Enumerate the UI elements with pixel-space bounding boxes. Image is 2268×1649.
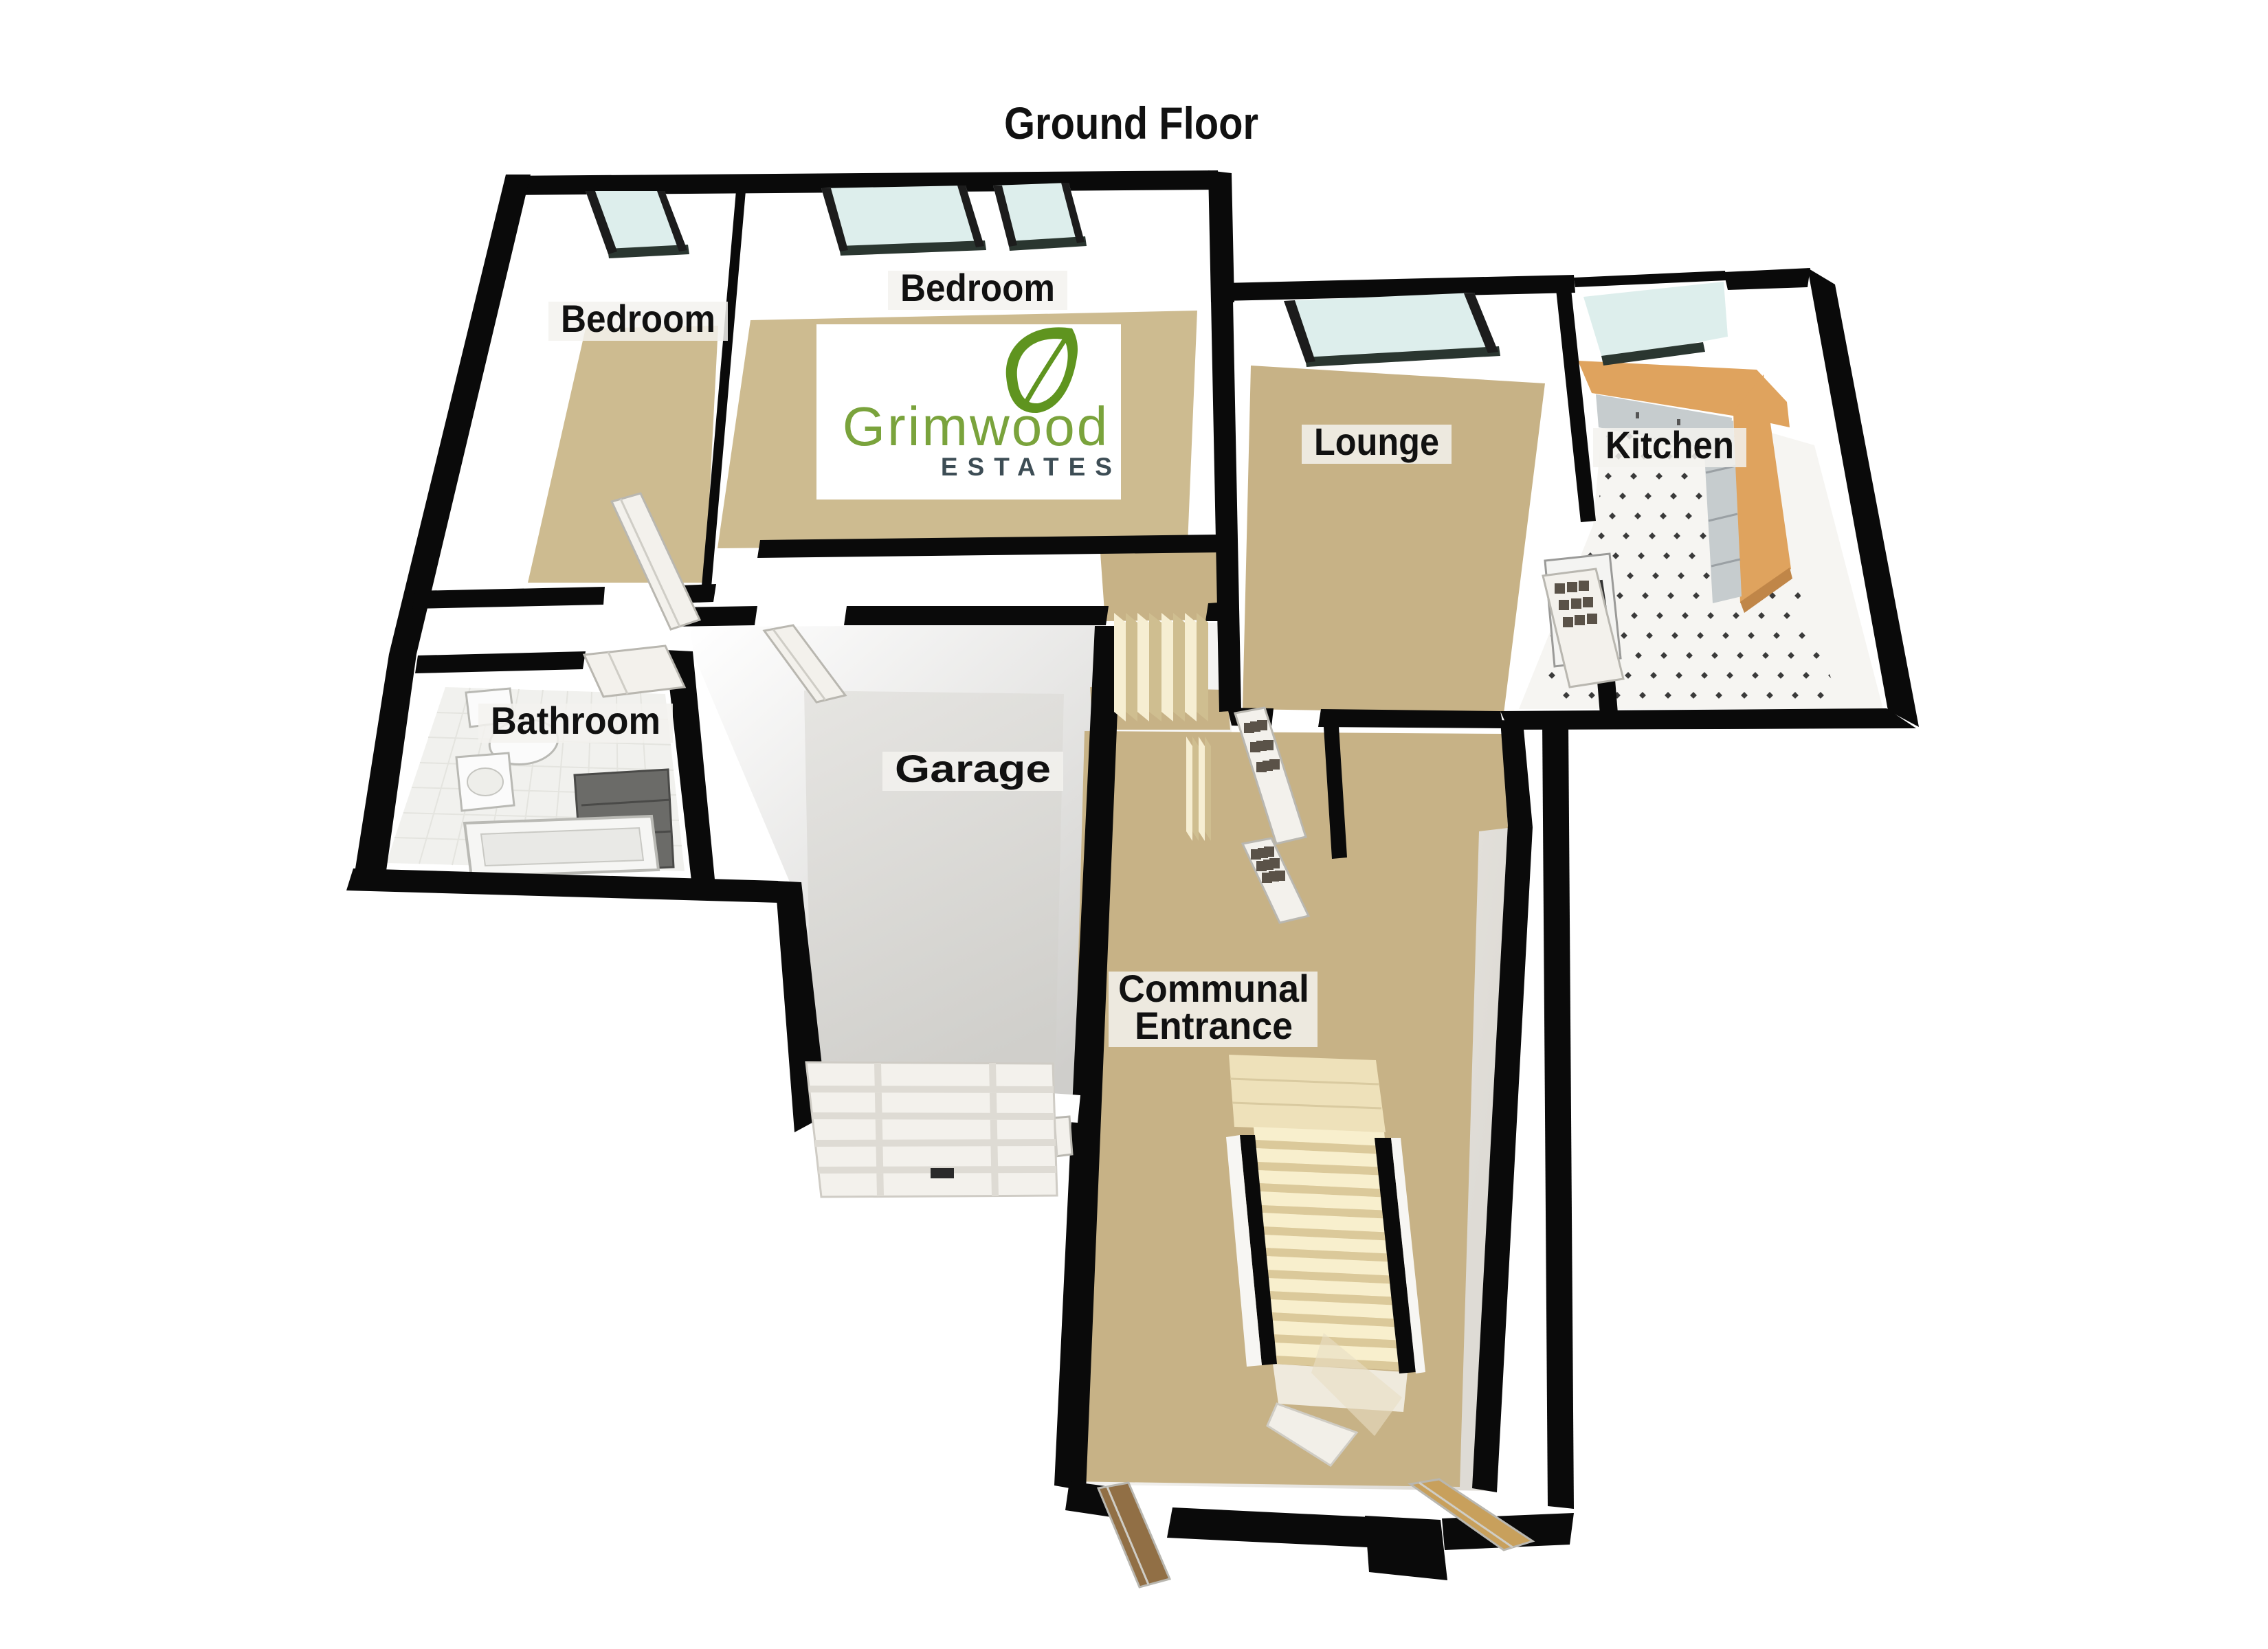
svg-text:Bedroom: Bedroom [900, 266, 1055, 309]
svg-text:Grimwood: Grimwood [843, 396, 1110, 457]
svg-text:Bathroom: Bathroom [491, 699, 660, 742]
svg-text:Lounge: Lounge [1314, 420, 1439, 463]
svg-text:Garage: Garage [895, 747, 1051, 790]
svg-text:Bedroom: Bedroom [561, 297, 715, 340]
svg-text:Entrance: Entrance [1135, 1004, 1293, 1047]
svg-text:Ground Floor: Ground Floor [1004, 98, 1258, 148]
svg-text:Kitchen: Kitchen [1605, 423, 1734, 467]
svg-text:ESTATES: ESTATES [941, 453, 1122, 481]
